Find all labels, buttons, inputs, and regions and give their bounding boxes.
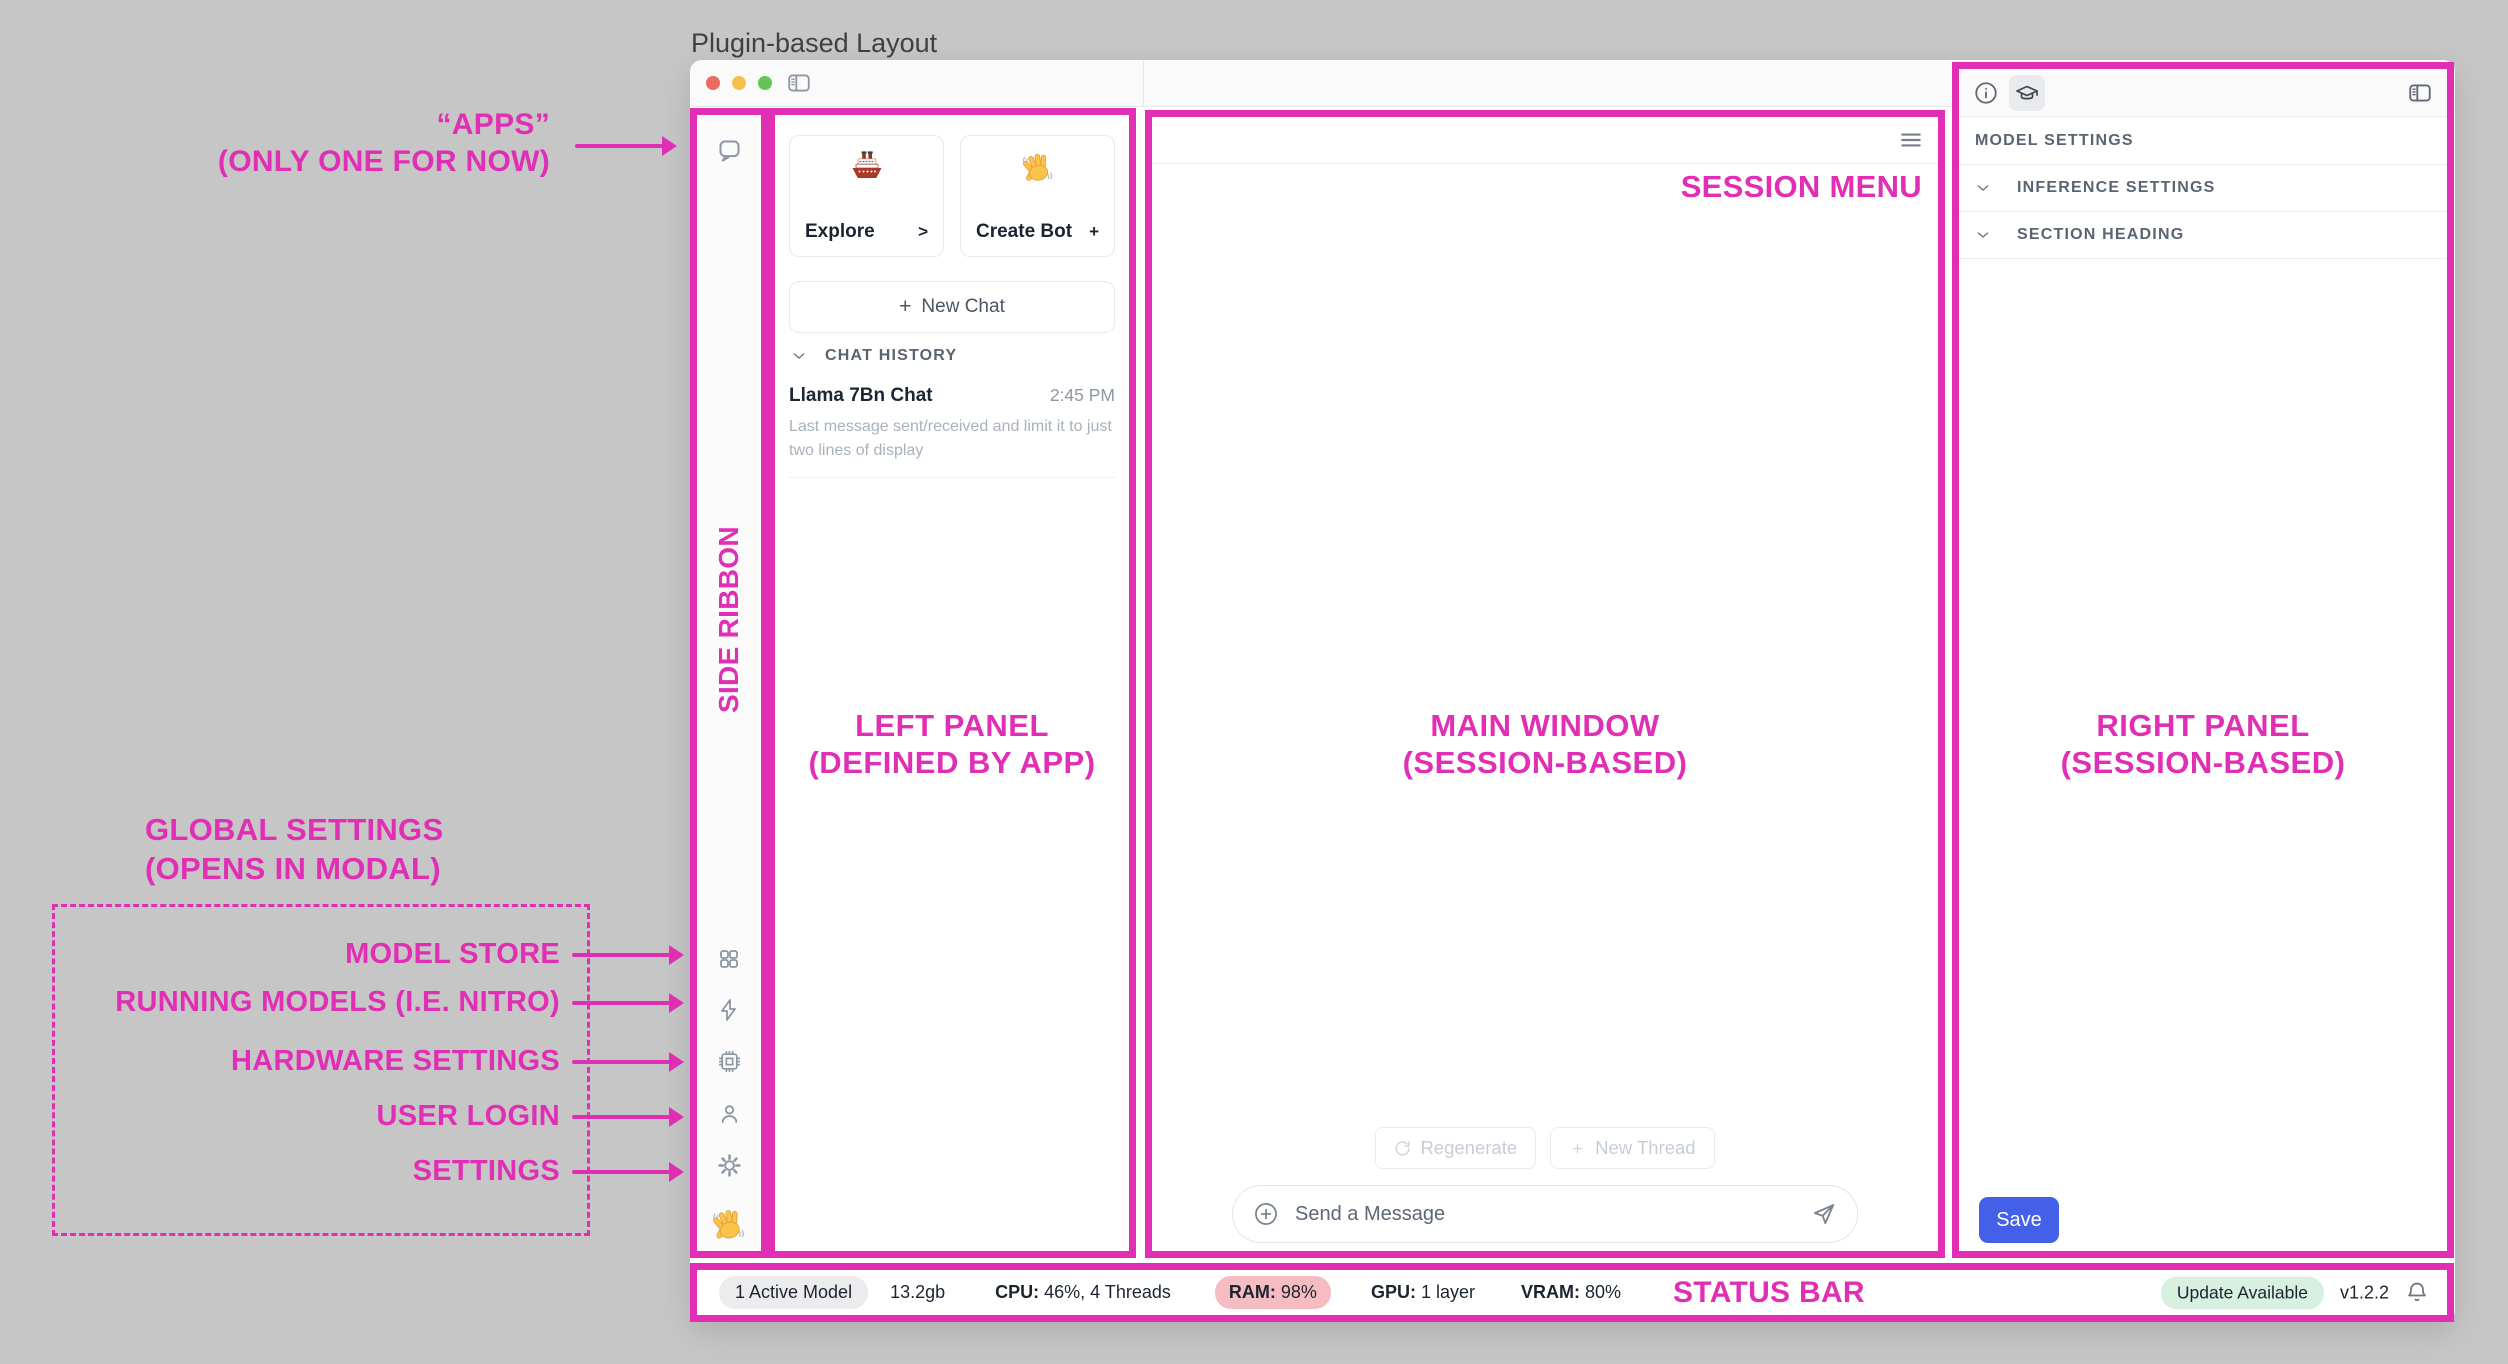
- running-models-annotation: RUNNING MODELS (I.E. NITRO): [52, 986, 560, 1019]
- hardware-settings-icon[interactable]: [717, 1049, 742, 1074]
- model-store-icon[interactable]: [717, 947, 741, 971]
- traffic-lights: [706, 76, 772, 90]
- vram-stat: VRAM: 80%: [1521, 1282, 1621, 1303]
- session-menu-annotation: SESSION MENU: [1681, 169, 1922, 205]
- wave-emoji-icon: [976, 149, 1099, 185]
- ram-stat-badge: RAM: 98%: [1215, 1276, 1331, 1309]
- memory-usage: 13.2gb: [890, 1282, 945, 1303]
- chevron-down-icon: [1975, 180, 1991, 196]
- hardware-settings-arrow: [572, 1052, 684, 1072]
- wave-emoji-icon[interactable]: [710, 1205, 748, 1243]
- create-bot-card-label: Create Bot: [976, 221, 1072, 243]
- explore-card[interactable]: Explore >: [789, 135, 944, 257]
- list-divider: [789, 477, 1115, 478]
- active-models-badge[interactable]: 1 Active Model: [719, 1276, 868, 1309]
- chevron-down-icon: [791, 348, 807, 364]
- chevron-down-icon: [1975, 227, 1991, 243]
- sidebar-toggle-icon[interactable]: [786, 70, 812, 96]
- settings-icon[interactable]: [717, 1153, 742, 1178]
- minimize-button[interactable]: [732, 76, 746, 90]
- refresh-icon: [1394, 1140, 1411, 1157]
- model-store-annotation: MODEL STORE: [52, 938, 560, 971]
- model-settings-header: MODEL SETTINGS: [1959, 117, 2447, 165]
- send-icon[interactable]: [1811, 1201, 1837, 1227]
- main-window-annotation: MAIN WINDOW (SESSION-BASED): [1152, 707, 1938, 781]
- plus-icon: [1569, 1140, 1586, 1157]
- page-title: Plugin-based Layout: [691, 28, 937, 59]
- chat-app-icon[interactable]: [716, 137, 743, 164]
- update-available-badge[interactable]: Update Available: [2161, 1276, 2324, 1309]
- inference-settings-section[interactable]: INFERENCE SETTINGS: [1959, 165, 2447, 212]
- chat-history-header[interactable]: CHAT HISTORY: [789, 347, 1115, 365]
- info-icon[interactable]: [1973, 80, 1999, 106]
- side-ribbon-annotation: SIDE RIBBON: [697, 515, 761, 725]
- status-bar-annotation: STATUS BAR: [1673, 1276, 1865, 1310]
- settings-arrow: [572, 1162, 684, 1182]
- apps-arrow: [575, 136, 677, 156]
- user-login-icon[interactable]: [717, 1101, 742, 1126]
- cpu-stat: CPU: 46%, 4 Threads: [995, 1282, 1171, 1303]
- attach-plus-icon[interactable]: [1253, 1201, 1279, 1227]
- user-login-annotation: USER LOGIN: [52, 1100, 560, 1133]
- chat-item-time: 2:45 PM: [1050, 385, 1115, 406]
- new-thread-button[interactable]: New Thread: [1550, 1127, 1714, 1169]
- settings-annotation: SETTINGS: [52, 1155, 560, 1188]
- right-panel-annotation: RIGHT PANEL (SESSION-BASED): [1959, 707, 2447, 781]
- sidebar-toggle-icon[interactable]: [2407, 80, 2433, 106]
- left-panel: Explore > Create Bot +: [768, 108, 1136, 1258]
- side-ribbon: SIDE RIBBON: [690, 108, 768, 1258]
- main-topbar: [1152, 117, 1938, 164]
- app-window: SIDE RIBBON: [690, 60, 2455, 1322]
- left-panel-annotation: LEFT PANEL (DEFINED BY APP): [775, 707, 1129, 781]
- chat-history-item[interactable]: Llama 7Bn Chat 2:45 PM Last message sent…: [789, 385, 1115, 478]
- session-menu-icon[interactable]: [1898, 127, 1924, 153]
- close-button[interactable]: [706, 76, 720, 90]
- design-canvas: Plugin-based Layout SIDE RIBBON: [0, 0, 2508, 1364]
- explore-card-chevron: >: [918, 222, 928, 242]
- section-heading-section[interactable]: SECTION HEADING: [1959, 212, 2447, 259]
- model-store-arrow: [572, 945, 684, 965]
- main-window: SESSION MENU MAIN WINDOW (SESSION-BASED)…: [1145, 110, 1945, 1258]
- regenerate-button[interactable]: Regenerate: [1375, 1127, 1536, 1169]
- regenerate-label: Regenerate: [1420, 1137, 1517, 1159]
- version-label: v1.2.2: [2340, 1282, 2389, 1303]
- create-bot-card[interactable]: Create Bot +: [960, 135, 1115, 257]
- new-chat-label: New Chat: [921, 296, 1004, 318]
- global-settings-annotation: GLOBAL SETTINGS (OPENS IN MODAL): [145, 810, 443, 888]
- model-settings-tab[interactable]: [2009, 75, 2045, 111]
- save-button[interactable]: Save: [1979, 1197, 2059, 1243]
- apps-annotation: “APPS” (ONLY ONE FOR NOW): [200, 106, 550, 180]
- new-thread-label: New Thread: [1595, 1137, 1695, 1159]
- chat-item-title: Llama 7Bn Chat: [789, 385, 933, 407]
- zoom-button[interactable]: [758, 76, 772, 90]
- message-input-container: [1232, 1185, 1858, 1243]
- right-panel: MODEL SETTINGS INFERENCE SETTINGS SECTIO…: [1952, 62, 2454, 1258]
- running-models-arrow: [572, 993, 684, 1013]
- toolbar-divider: [1143, 60, 1144, 107]
- running-models-icon[interactable]: [717, 998, 741, 1022]
- ship-emoji-icon: [805, 149, 928, 185]
- new-chat-button[interactable]: + New Chat: [789, 281, 1115, 333]
- explore-card-label: Explore: [805, 221, 875, 243]
- chat-item-preview: Last message sent/received and limit it …: [789, 415, 1115, 463]
- right-panel-toolbar: [1959, 69, 2447, 117]
- user-login-arrow: [572, 1107, 684, 1127]
- chat-history-label: CHAT HISTORY: [825, 347, 957, 365]
- gpu-stat: GPU: 1 layer: [1371, 1282, 1475, 1303]
- graduation-cap-icon: [2015, 81, 2039, 105]
- status-bar: 1 Active Model 13.2gb CPU: 46%, 4 Thread…: [690, 1263, 2454, 1322]
- plus-icon: +: [899, 295, 911, 319]
- bell-icon[interactable]: [2405, 1281, 2429, 1305]
- message-input[interactable]: [1293, 1202, 1811, 1227]
- create-bot-card-plus: +: [1089, 222, 1099, 242]
- hardware-settings-annotation: HARDWARE SETTINGS: [52, 1045, 560, 1078]
